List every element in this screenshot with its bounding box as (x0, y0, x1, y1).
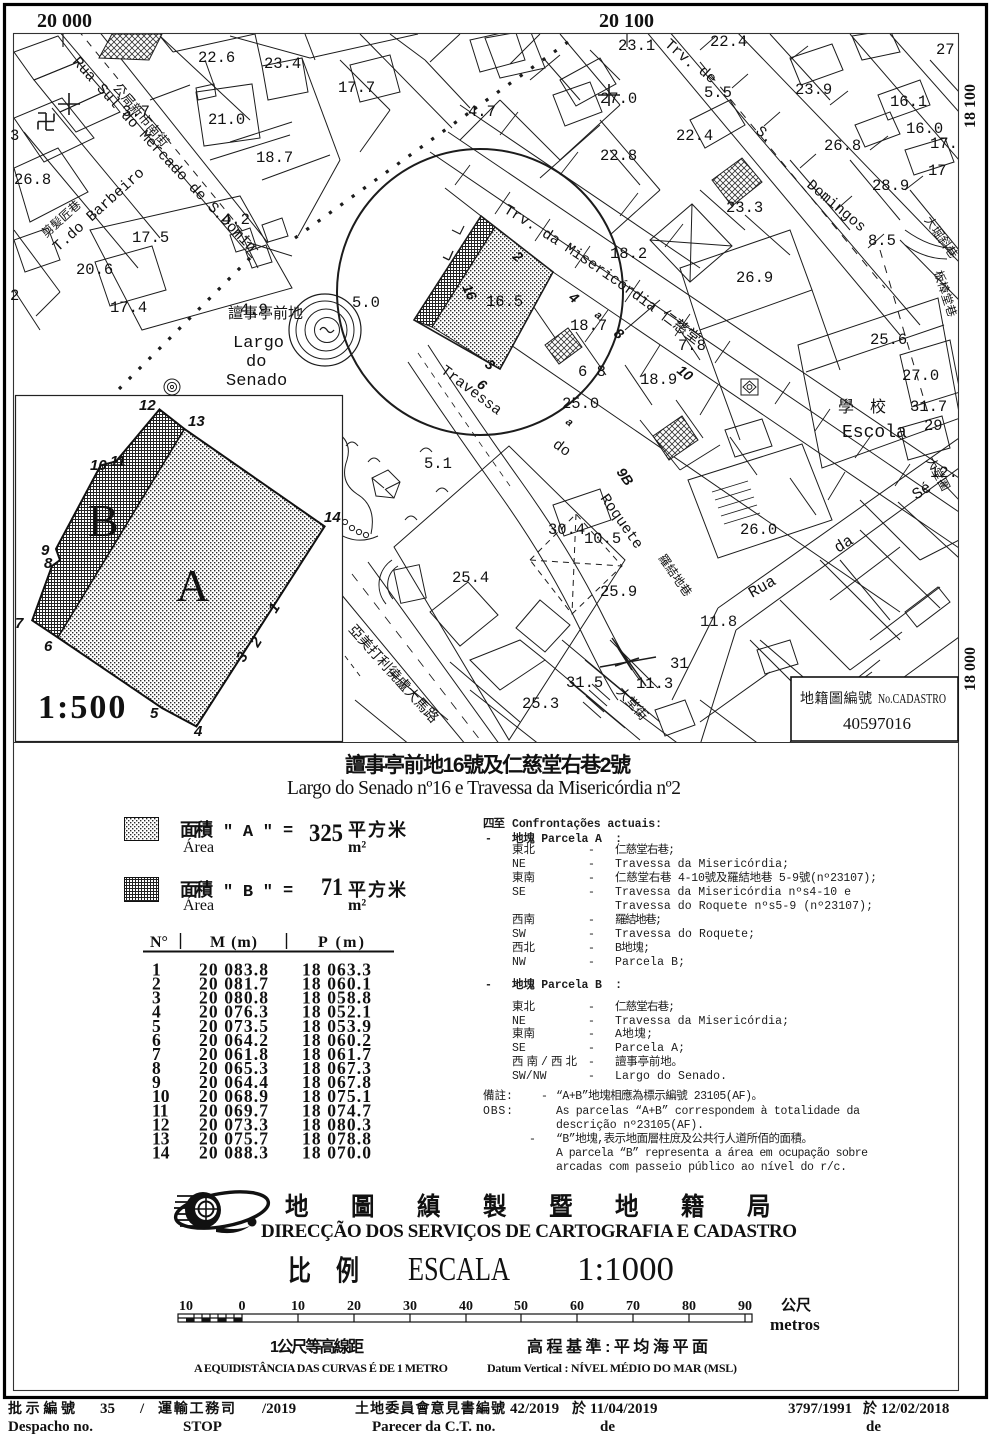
svg-text:學 校: 學 校 (838, 398, 886, 417)
svg-text:7.8: 7.8 (678, 337, 706, 355)
svg-text:Senado: Senado (226, 372, 287, 391)
svg-text:B地塊;: B地塊; (615, 940, 650, 955)
svg-text:6 8: 6 8 (578, 363, 606, 381)
svg-text:製: 製 (482, 1193, 506, 1221)
svg-text:31.7: 31.7 (910, 398, 947, 416)
svg-text:SW: SW (512, 928, 526, 941)
svg-text:Parcela A;: Parcela A; (615, 1042, 685, 1055)
svg-text:26.9: 26.9 (736, 269, 773, 287)
svg-text:22.4: 22.4 (676, 127, 713, 145)
svg-text:12.: 12. (930, 464, 958, 482)
svg-text:-: - (588, 1056, 595, 1069)
svg-text:備註:: 備註: (483, 1088, 513, 1103)
svg-text:30.4: 30.4 (548, 521, 585, 539)
svg-text:de: de (866, 1419, 881, 1435)
svg-text:9B: 9B (614, 465, 637, 489)
svg-text:例: 例 (336, 1255, 359, 1286)
svg-text:20 100: 20 100 (599, 10, 654, 32)
svg-text:arcadas com passeio público ao: arcadas com passeio público ao nível do … (556, 1161, 847, 1174)
svg-text:No.CADASTRO: No.CADASTRO (878, 691, 946, 706)
svg-text:12: 12 (139, 397, 156, 414)
svg-text:25.4: 25.4 (452, 569, 489, 587)
svg-text:" A ": " A " (223, 823, 273, 842)
svg-text:27.0: 27.0 (600, 90, 637, 108)
svg-text:-: - (588, 1015, 595, 1028)
svg-text:70: 70 (626, 1299, 640, 1314)
svg-text:西北: 西北 (512, 941, 536, 955)
svg-text:20 000: 20 000 (37, 10, 92, 32)
svg-text:20: 20 (347, 1299, 361, 1314)
svg-text:10.5: 10.5 (584, 530, 621, 548)
svg-text:17.: 17. (930, 135, 958, 153)
svg-text:25.3: 25.3 (522, 695, 559, 713)
svg-text:de: de (600, 1419, 615, 1435)
svg-text:-: - (588, 1042, 595, 1055)
svg-text:-: - (485, 833, 492, 846)
svg-text:東北: 東北 (512, 1000, 536, 1014)
svg-text:西南/西北: 西南/西北 (512, 1054, 578, 1069)
svg-text:東南: 東南 (512, 870, 535, 885)
svg-text:26.8: 26.8 (14, 171, 51, 189)
svg-text:DIRECÇÃO DOS SERVIÇOS DE CARTO: DIRECÇÃO DOS SERVIÇOS DE CARTOGRAFIA E C… (261, 1220, 797, 1242)
svg-text:4: 4 (565, 288, 582, 306)
svg-text:18 070.0: 18 070.0 (302, 1143, 371, 1163)
svg-text:地籍圖編號: 地籍圖編號 (800, 690, 872, 708)
svg-text:A: A (176, 560, 209, 611)
svg-text:22.8: 22.8 (600, 147, 637, 165)
svg-text:17.7: 17.7 (338, 79, 375, 97)
svg-text:26.0: 26.0 (740, 521, 777, 539)
svg-text:metros: metros (770, 1315, 820, 1334)
svg-text:40: 40 (459, 1299, 473, 1314)
svg-text:do: do (549, 436, 574, 460)
svg-text:西南: 西南 (512, 912, 535, 927)
svg-text:10: 10 (179, 1299, 193, 1314)
svg-text:Travessa do Roquete nºs5-9 (nº: Travessa do Roquete nºs5-9 (nº23107); (615, 900, 873, 913)
svg-text:批示編號: 批示編號 (8, 1400, 75, 1416)
svg-text:27.0: 27.0 (902, 367, 939, 385)
svg-text:Largo do Senado nº16 e Travess: Largo do Senado nº16 e Travessa da Miser… (287, 778, 681, 799)
svg-text:B: B (88, 495, 119, 546)
svg-text:16.5: 16.5 (486, 293, 523, 311)
svg-text:a: a (563, 416, 575, 429)
svg-text:-: - (588, 1028, 595, 1041)
svg-text:18.2: 18.2 (610, 245, 647, 263)
svg-text:Confrontações actuais:: Confrontações actuais: (512, 818, 662, 831)
svg-text:22.4: 22.4 (710, 33, 747, 51)
svg-text:NE: NE (512, 1015, 526, 1028)
svg-text:Largo: Largo (233, 334, 284, 353)
svg-text:高程基準:平均海平面: 高程基準:平均海平面 (527, 1337, 708, 1356)
svg-text:descrição nº23105(AF).: descrição nº23105(AF). (556, 1119, 704, 1132)
svg-text:Rua: Rua (746, 572, 780, 602)
svg-text:10: 10 (90, 457, 107, 474)
svg-text:/: / (139, 1401, 145, 1417)
svg-text:羅結地巷: 羅結地巷 (655, 552, 695, 600)
svg-text:-: - (588, 872, 595, 885)
svg-text:As parcelas “A+B” correspondem: As parcelas “A+B” correspondem à totalid… (556, 1105, 860, 1118)
svg-text:仁慈堂右巷 4-10號及羅結地巷 5-9號(nº23107): 仁慈堂右巷 4-10號及羅結地巷 5-9號(nº23107); (615, 870, 877, 885)
svg-text:Área: Área (183, 837, 214, 856)
svg-text:21.0: 21.0 (208, 111, 245, 129)
svg-text:26.8: 26.8 (824, 137, 861, 155)
svg-text:8.5: 8.5 (868, 232, 896, 250)
svg-text:縝: 縝 (417, 1192, 441, 1221)
svg-text:Datum Vertical : NÍVEL MÉDIO D: Datum Vertical : NÍVEL MÉDIO DO MAR (MSL… (487, 1361, 737, 1375)
svg-text:Sé: Sé (909, 479, 935, 504)
svg-text:“B”地塊,表示地面層柱庻及公共行人道所佰的面積。: “B”地塊,表示地面層柱庻及公共行人道所佰的面積。 (556, 1131, 813, 1146)
svg-text:m²: m² (348, 839, 366, 856)
svg-text:比: 比 (288, 1255, 311, 1286)
svg-text:14: 14 (152, 1143, 170, 1163)
svg-text:11.3: 11.3 (636, 675, 673, 693)
svg-text:31.5: 31.5 (566, 674, 603, 692)
svg-text:Travessa da Misericórdia;: Travessa da Misericórdia; (615, 1015, 789, 1028)
svg-text:四至: 四至 (483, 817, 506, 831)
svg-text:325: 325 (309, 820, 343, 847)
svg-text:NE: NE (512, 858, 526, 871)
svg-text:/2019: /2019 (261, 1401, 296, 1417)
svg-text:面積: 面積 (180, 819, 214, 840)
svg-text:仁慈堂右巷;: 仁慈堂右巷; (615, 999, 675, 1014)
svg-text:da: da (831, 532, 857, 558)
svg-text:NW: NW (512, 956, 526, 969)
svg-text:Trv.: Trv. (661, 36, 699, 73)
svg-text:5.5: 5.5 (704, 84, 732, 102)
svg-text:Parcela B;: Parcela B; (615, 956, 685, 969)
svg-text:11/04/2019: 11/04/2019 (590, 1401, 658, 1417)
svg-text:譠事亭前地16號及仁慈堂右巷2號: 譠事亭前地16號及仁慈堂右巷2號 (345, 753, 631, 777)
svg-text:20 088.3: 20 088.3 (199, 1143, 268, 1163)
svg-text:暨: 暨 (549, 1193, 573, 1221)
svg-text:2: 2 (10, 287, 19, 305)
svg-text:地: 地 (285, 1193, 309, 1221)
svg-text:於: 於 (863, 1400, 878, 1416)
svg-text:A parcela “B” representa a áre: A parcela “B” representa a área em ocupa… (556, 1147, 868, 1160)
svg-text:3797/1991: 3797/1991 (788, 1401, 852, 1417)
svg-text:0: 0 (239, 1299, 246, 1314)
svg-text:25.9: 25.9 (600, 583, 637, 601)
svg-text:31: 31 (670, 655, 689, 673)
svg-text:30: 30 (403, 1299, 417, 1314)
svg-text:Travessa da Misericórdia nºs4-: Travessa da Misericórdia nºs4-10 e (615, 886, 851, 899)
svg-text:土地委員會意見書編號: 土地委員會意見書編號 (355, 1400, 505, 1416)
svg-text:17.5: 17.5 (132, 229, 169, 247)
svg-text:3: 3 (10, 127, 19, 145)
svg-text:25.0: 25.0 (562, 395, 599, 413)
svg-text:5.0: 5.0 (352, 294, 380, 312)
svg-text:23.1: 23.1 (618, 37, 655, 55)
svg-text:-: - (588, 956, 595, 969)
svg-text:SE: SE (512, 1042, 526, 1055)
svg-text:13: 13 (188, 413, 205, 430)
svg-text:" B ": " B " (223, 883, 273, 902)
svg-text:譠事亭前地。: 譠事亭前地。 (615, 1054, 683, 1069)
svg-text:東北: 東北 (512, 843, 536, 857)
svg-text:20.6: 20.6 (76, 261, 113, 279)
svg-text:4.9: 4.9 (240, 301, 268, 319)
svg-text:10: 10 (674, 362, 696, 384)
svg-text:23.4: 23.4 (264, 55, 301, 73)
svg-text:-: - (529, 1133, 536, 1146)
svg-text:11: 11 (110, 453, 126, 470)
svg-text:局: 局 (747, 1193, 771, 1221)
svg-text:42/2019: 42/2019 (510, 1401, 559, 1417)
svg-text:5: 5 (150, 705, 159, 722)
svg-text:1:1000: 1:1000 (577, 1251, 674, 1288)
svg-text:東南: 東南 (512, 1026, 535, 1041)
svg-text:-: - (541, 1090, 548, 1103)
svg-text:SE: SE (512, 886, 526, 899)
svg-text:23.3: 23.3 (726, 199, 763, 217)
svg-text:平方米: 平方米 (348, 819, 407, 840)
svg-text:4: 4 (193, 723, 203, 740)
svg-text:4.7: 4.7 (468, 103, 496, 121)
svg-text:25.6: 25.6 (870, 331, 907, 349)
svg-text:18.7: 18.7 (256, 149, 293, 167)
svg-text:17: 17 (928, 162, 947, 180)
svg-text:do: do (246, 353, 266, 372)
svg-text:Parecer da C.T. no.: Parecer da C.T. no. (372, 1419, 496, 1435)
svg-text:18 000: 18 000 (962, 647, 979, 691)
svg-text:“A+B”地塊相應為標示編號 23105(AF)。: “A+B”地塊相應為標示編號 23105(AF)。 (556, 1088, 763, 1103)
svg-text:SW/NW: SW/NW (512, 1070, 547, 1083)
svg-text:N°: N° (150, 934, 168, 951)
svg-text:STOP: STOP (183, 1419, 222, 1435)
svg-text:10: 10 (291, 1299, 305, 1314)
svg-text:22.6: 22.6 (198, 49, 235, 67)
svg-text:羅結地巷;: 羅結地巷; (615, 912, 662, 927)
svg-text:-: - (588, 1001, 595, 1014)
svg-text:-: - (588, 928, 595, 941)
svg-text:71: 71 (321, 874, 343, 901)
svg-text:地: 地 (615, 1193, 639, 1221)
svg-text:籍: 籍 (681, 1192, 705, 1221)
svg-text:=: = (283, 822, 293, 841)
svg-text:1公尺等高線距: 1公尺等高線距 (270, 1337, 364, 1356)
svg-text:80: 80 (682, 1299, 696, 1314)
svg-text:A地塊;: A地塊; (615, 1026, 653, 1041)
svg-text:Travessa: Travessa (437, 362, 505, 419)
svg-text:-: - (485, 979, 492, 992)
svg-text:4.2: 4.2 (222, 211, 250, 229)
svg-text:28.9: 28.9 (872, 177, 909, 195)
svg-text:Despacho no.: Despacho no. (8, 1419, 93, 1435)
svg-text:-: - (588, 1070, 595, 1083)
svg-text:運輸工務司: 運輸工務司 (158, 1400, 235, 1416)
svg-text:-: - (588, 844, 595, 857)
svg-text:於: 於 (572, 1400, 587, 1416)
svg-text:-: - (588, 858, 595, 871)
svg-text:27: 27 (936, 41, 955, 59)
svg-text:60: 60 (570, 1299, 584, 1314)
svg-text:40597016: 40597016 (843, 714, 911, 733)
svg-text:Travessa da Misericórdia;: Travessa da Misericórdia; (615, 858, 789, 871)
svg-text:8: 8 (611, 325, 627, 343)
svg-text:1:500: 1:500 (38, 689, 127, 726)
svg-text:11.8: 11.8 (700, 613, 737, 631)
svg-text:18.9: 18.9 (640, 371, 677, 389)
svg-text:23.9: 23.9 (795, 81, 832, 99)
svg-text:35: 35 (100, 1401, 115, 1417)
svg-text:3.7: 3.7 (122, 103, 150, 121)
svg-text:18.7: 18.7 (570, 317, 607, 335)
svg-text:16.1: 16.1 (890, 93, 927, 111)
svg-text:18 100: 18 100 (962, 84, 979, 128)
svg-text:P (m): P (m) (318, 934, 364, 951)
svg-text:5.1: 5.1 (424, 455, 452, 473)
svg-text:Escola: Escola (842, 423, 907, 443)
svg-text:29: 29 (924, 417, 943, 435)
svg-text:17.4: 17.4 (110, 299, 147, 317)
svg-text:90: 90 (738, 1299, 752, 1314)
svg-text:-: - (588, 914, 595, 927)
svg-text:6: 6 (44, 638, 53, 655)
svg-text:S.: S. (752, 123, 777, 148)
svg-text:14: 14 (324, 509, 341, 526)
svg-text:-: - (588, 942, 595, 955)
svg-text:7: 7 (15, 615, 24, 632)
svg-text:地塊 Parcela B :: 地塊 Parcela B : (512, 977, 622, 992)
svg-text:圖: 圖 (351, 1193, 375, 1221)
svg-text:大堀斜巷: 大堀斜巷 (921, 213, 962, 262)
svg-text:OBS:: OBS: (483, 1105, 513, 1118)
svg-text:板樟堂巷: 板樟堂巷 (930, 268, 960, 319)
svg-text:A EQUIDISTÂNCIA DAS CURVAS É D: A EQUIDISTÂNCIA DAS CURVAS É DE 1 METRO (194, 1361, 448, 1375)
svg-text:Área: Área (183, 895, 214, 914)
svg-text:50: 50 (514, 1299, 528, 1314)
svg-text:M (m): M (m) (210, 934, 257, 951)
svg-text:Travessa do Roquete;: Travessa do Roquete; (615, 928, 755, 941)
svg-text:-: - (588, 886, 595, 899)
svg-text:=: = (283, 882, 293, 901)
svg-text:ESCALA: ESCALA (408, 1251, 510, 1288)
svg-text:12/02/2018: 12/02/2018 (881, 1401, 949, 1417)
svg-text:Largo do Senado.: Largo do Senado. (615, 1070, 727, 1083)
svg-text:9: 9 (41, 542, 50, 559)
svg-text:仁慈堂右巷;: 仁慈堂右巷; (615, 842, 675, 857)
svg-text:公尺: 公尺 (781, 1297, 811, 1314)
svg-text:m²: m² (348, 897, 366, 914)
